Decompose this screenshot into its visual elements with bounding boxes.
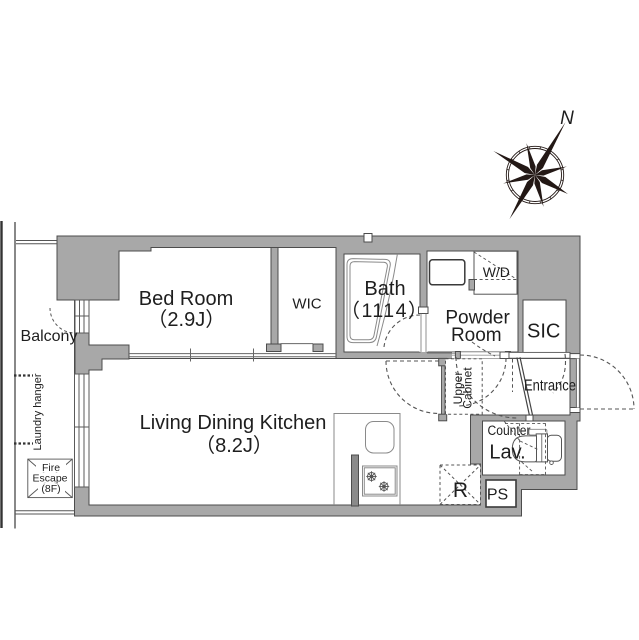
svg-text:Living Dining Kitchen: Living Dining Kitchen bbox=[140, 412, 327, 434]
svg-text:Laundry hanger: Laundry hanger bbox=[32, 373, 44, 450]
svg-text:（8.2J）: （8.2J） bbox=[195, 434, 273, 457]
svg-text:W/D: W/D bbox=[483, 264, 510, 280]
svg-text:Bath: Bath bbox=[364, 278, 405, 300]
svg-text:Room: Room bbox=[451, 325, 502, 346]
svg-text:Balcony: Balcony bbox=[21, 328, 78, 345]
svg-text:N: N bbox=[560, 108, 574, 129]
svg-text:SIC: SIC bbox=[527, 321, 560, 343]
svg-text:WIC: WIC bbox=[292, 296, 321, 313]
svg-text:Lav.: Lav. bbox=[489, 442, 525, 464]
svg-text:R: R bbox=[453, 479, 468, 502]
svg-text:(8F): (8F) bbox=[41, 483, 60, 495]
svg-text:（1114）: （1114） bbox=[340, 300, 429, 322]
svg-text:Entrance: Entrance bbox=[524, 378, 576, 395]
svg-text:PS: PS bbox=[487, 487, 508, 504]
svg-text:（2.9J）: （2.9J） bbox=[147, 308, 225, 331]
svg-text:Cabinet: Cabinet bbox=[461, 367, 475, 409]
svg-text:Bed Room: Bed Room bbox=[139, 288, 234, 310]
svg-text:Counter: Counter bbox=[488, 423, 531, 438]
